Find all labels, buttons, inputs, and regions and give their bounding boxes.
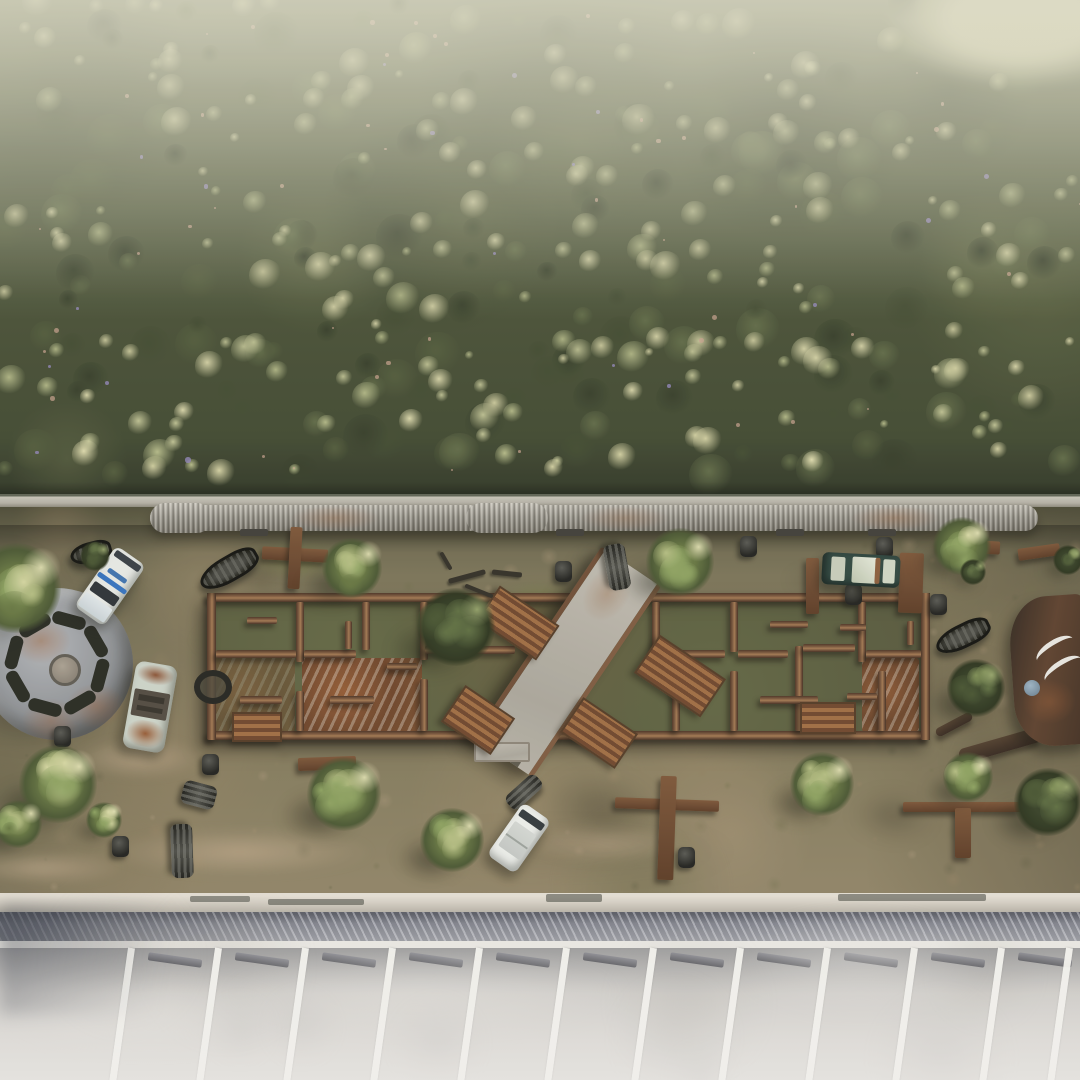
tree-highlight	[963, 519, 992, 548]
tree-highlight	[974, 559, 987, 572]
tree	[957, 556, 989, 588]
interior-wall	[803, 644, 855, 652]
interior-wall	[730, 602, 738, 652]
barrel	[740, 536, 757, 557]
barricade-stub	[847, 693, 877, 700]
aerial-arena-render	[0, 0, 1080, 1080]
barricade-stub	[770, 621, 808, 628]
interior-wall	[330, 696, 374, 704]
interior-wall	[730, 671, 738, 731]
interior-wall	[240, 696, 282, 704]
tree	[82, 798, 126, 842]
tree	[942, 654, 1010, 722]
interior-wall	[304, 650, 356, 658]
turbine-slot	[4, 669, 32, 705]
tree-highlight	[454, 810, 486, 842]
tree	[0, 796, 46, 852]
ground-fog	[730, 908, 990, 1018]
tree-highlight	[60, 747, 99, 786]
tire	[194, 670, 232, 704]
green-car-panel-b	[851, 557, 877, 584]
green-car-panel-c	[831, 557, 846, 581]
tree	[640, 522, 720, 602]
interior-wall	[420, 679, 428, 731]
curb-mark	[838, 894, 986, 901]
tree	[0, 534, 70, 642]
tree	[410, 581, 502, 673]
interior-wall	[296, 691, 304, 731]
interior-wall	[858, 602, 866, 662]
interior-wall	[296, 602, 304, 662]
tree-highlight	[1069, 546, 1080, 561]
barricade-stub	[840, 624, 866, 631]
green-car	[821, 552, 901, 588]
tree-highlight	[824, 754, 856, 786]
tree	[1050, 542, 1080, 578]
barrel	[678, 847, 695, 868]
tree-highlight	[682, 530, 716, 564]
wreck-disc	[1024, 680, 1040, 696]
tree-highlight	[977, 661, 1006, 690]
barricade-stub	[345, 621, 352, 649]
tree-highlight	[353, 539, 383, 569]
turbine-hub	[49, 654, 81, 686]
stairs	[800, 702, 856, 734]
ground-shadow	[850, 790, 936, 843]
interior-wall	[216, 650, 296, 658]
tree-highlight	[19, 802, 43, 826]
wooden-cross-v	[955, 808, 971, 858]
interior-wall	[866, 650, 921, 658]
corrugated-roll	[179, 779, 218, 811]
green-car-panel-a	[882, 559, 896, 584]
interior-wall	[362, 602, 370, 650]
barrel	[202, 754, 219, 775]
tree-clump	[809, 780, 830, 801]
stairs	[232, 712, 282, 742]
corrugated-roll	[170, 824, 194, 879]
tree	[300, 750, 388, 838]
tree-highlight	[96, 542, 111, 557]
interior-wall	[738, 650, 788, 658]
tree-clump	[1021, 779, 1053, 811]
tree-highlight	[18, 545, 63, 590]
inflatable-boat	[932, 613, 995, 660]
tree-highlight	[105, 802, 123, 820]
interior-wall	[878, 671, 886, 731]
tree-highlight	[458, 590, 497, 629]
tree-highlight	[1050, 770, 1080, 804]
ground-fog	[0, 978, 300, 1048]
tree-highlight	[346, 759, 383, 796]
barricade-stub	[247, 617, 277, 624]
tree	[784, 746, 860, 822]
building-wall-left	[207, 593, 216, 740]
parking-lot	[0, 893, 1080, 1080]
tree	[1008, 762, 1080, 842]
debris-stick	[439, 551, 452, 570]
tree-clump	[653, 541, 683, 571]
debris-stick	[492, 569, 522, 577]
building-wall-right	[921, 593, 930, 740]
tree	[316, 532, 388, 604]
curb-mark	[546, 894, 602, 902]
barrel	[555, 561, 572, 582]
barrel	[930, 594, 947, 615]
tree	[77, 538, 113, 574]
tree	[414, 802, 490, 878]
barricade-stub	[907, 621, 914, 645]
tree	[938, 747, 998, 807]
